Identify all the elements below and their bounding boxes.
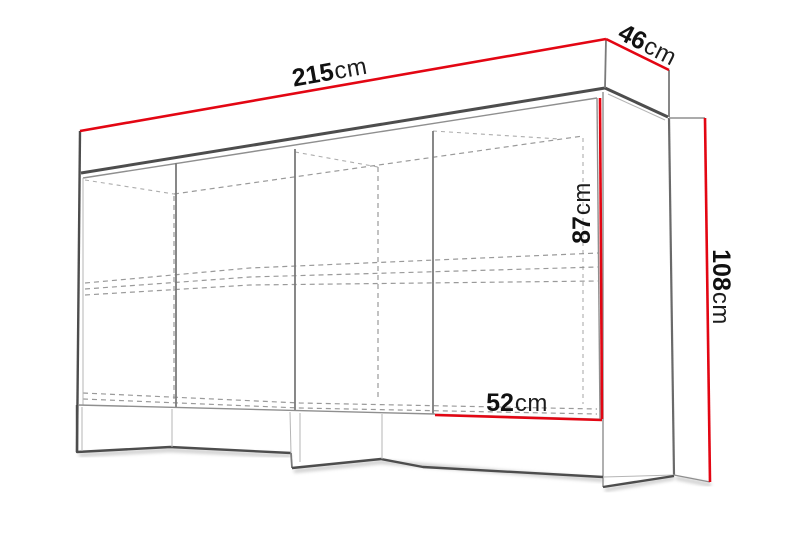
right-side-panel [603,92,710,487]
dimension-line-body-height [600,98,602,419]
right-divider-top-receding-edge [433,131,560,139]
dimension-line-width [80,39,606,131]
mid-divider-top-receding-edge [295,152,378,167]
cabinet-line-drawing: 215cm 46cm 87cm 108cm 52cm [0,0,800,533]
pillar-front-right-edge [669,118,674,475]
leg-line-mid-left [290,412,291,453]
left-wall-top-receding-edge [85,180,174,194]
dim-depth-label: 46cm [614,18,682,71]
shelf-mid-edge [85,267,598,289]
top-panel-apex-edge [605,39,606,88]
plinth-left-panel [77,405,291,453]
plinth-step-edge [291,453,292,468]
top-panel [81,39,669,178]
shelf-front-edge [85,281,598,295]
furniture-dimension-diagram: 215cm 46cm 87cm 108cm 52cm [0,0,800,533]
dim-section-width-label: 52cm [486,389,548,417]
dim-body-height-label: 87cm [568,182,596,244]
top-panel-right-bottom-edge [605,88,668,117]
dim-total-height-label: 108cm [707,249,735,325]
left-outer-edge [77,131,80,452]
top-panel-inner-front-edge [83,98,597,178]
interior-dashed-edges [83,131,598,414]
top-panel-inner-right-edge [608,94,665,120]
shelf-back-edge [85,253,598,283]
